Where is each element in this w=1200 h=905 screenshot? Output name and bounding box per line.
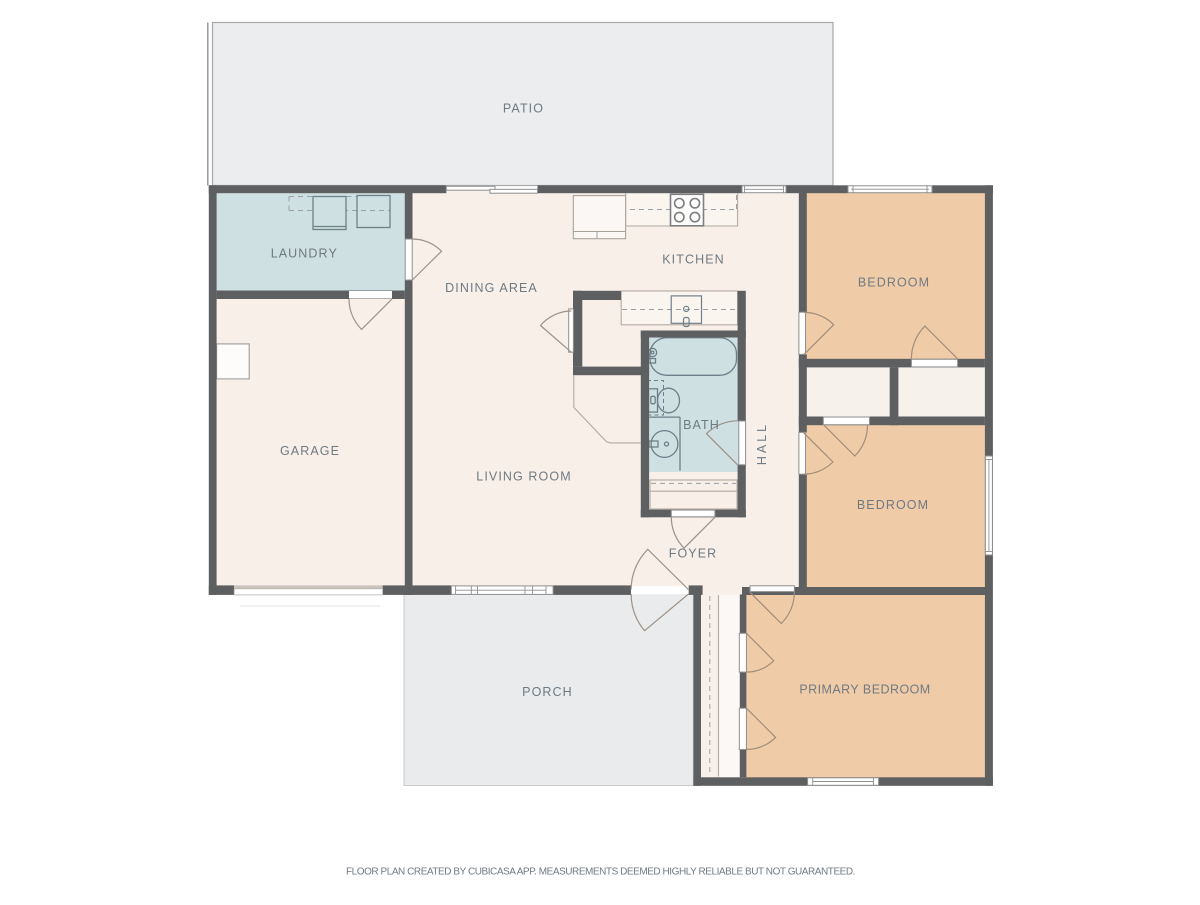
svg-text:KITCHEN: KITCHEN — [662, 253, 725, 267]
svg-text:PRIMARY BEDROOM: PRIMARY BEDROOM — [799, 683, 930, 697]
svg-text:DINING AREA: DINING AREA — [445, 281, 538, 295]
svg-text:LIVING ROOM: LIVING ROOM — [476, 470, 571, 484]
svg-text:FOYER: FOYER — [669, 547, 718, 561]
svg-text:GARAGE: GARAGE — [280, 444, 340, 458]
svg-text:LAUNDRY: LAUNDRY — [271, 246, 338, 260]
svg-text:BEDROOM: BEDROOM — [858, 276, 930, 290]
svg-text:PATIO: PATIO — [503, 102, 544, 116]
svg-text:BEDROOM: BEDROOM — [857, 498, 929, 512]
svg-text:PORCH: PORCH — [522, 685, 573, 699]
svg-text:HALL: HALL — [755, 422, 769, 465]
svg-text:BATH: BATH — [683, 418, 720, 432]
svg-text:FLOOR PLAN CREATED BY CUBICASA: FLOOR PLAN CREATED BY CUBICASA APP. MEAS… — [346, 867, 855, 878]
